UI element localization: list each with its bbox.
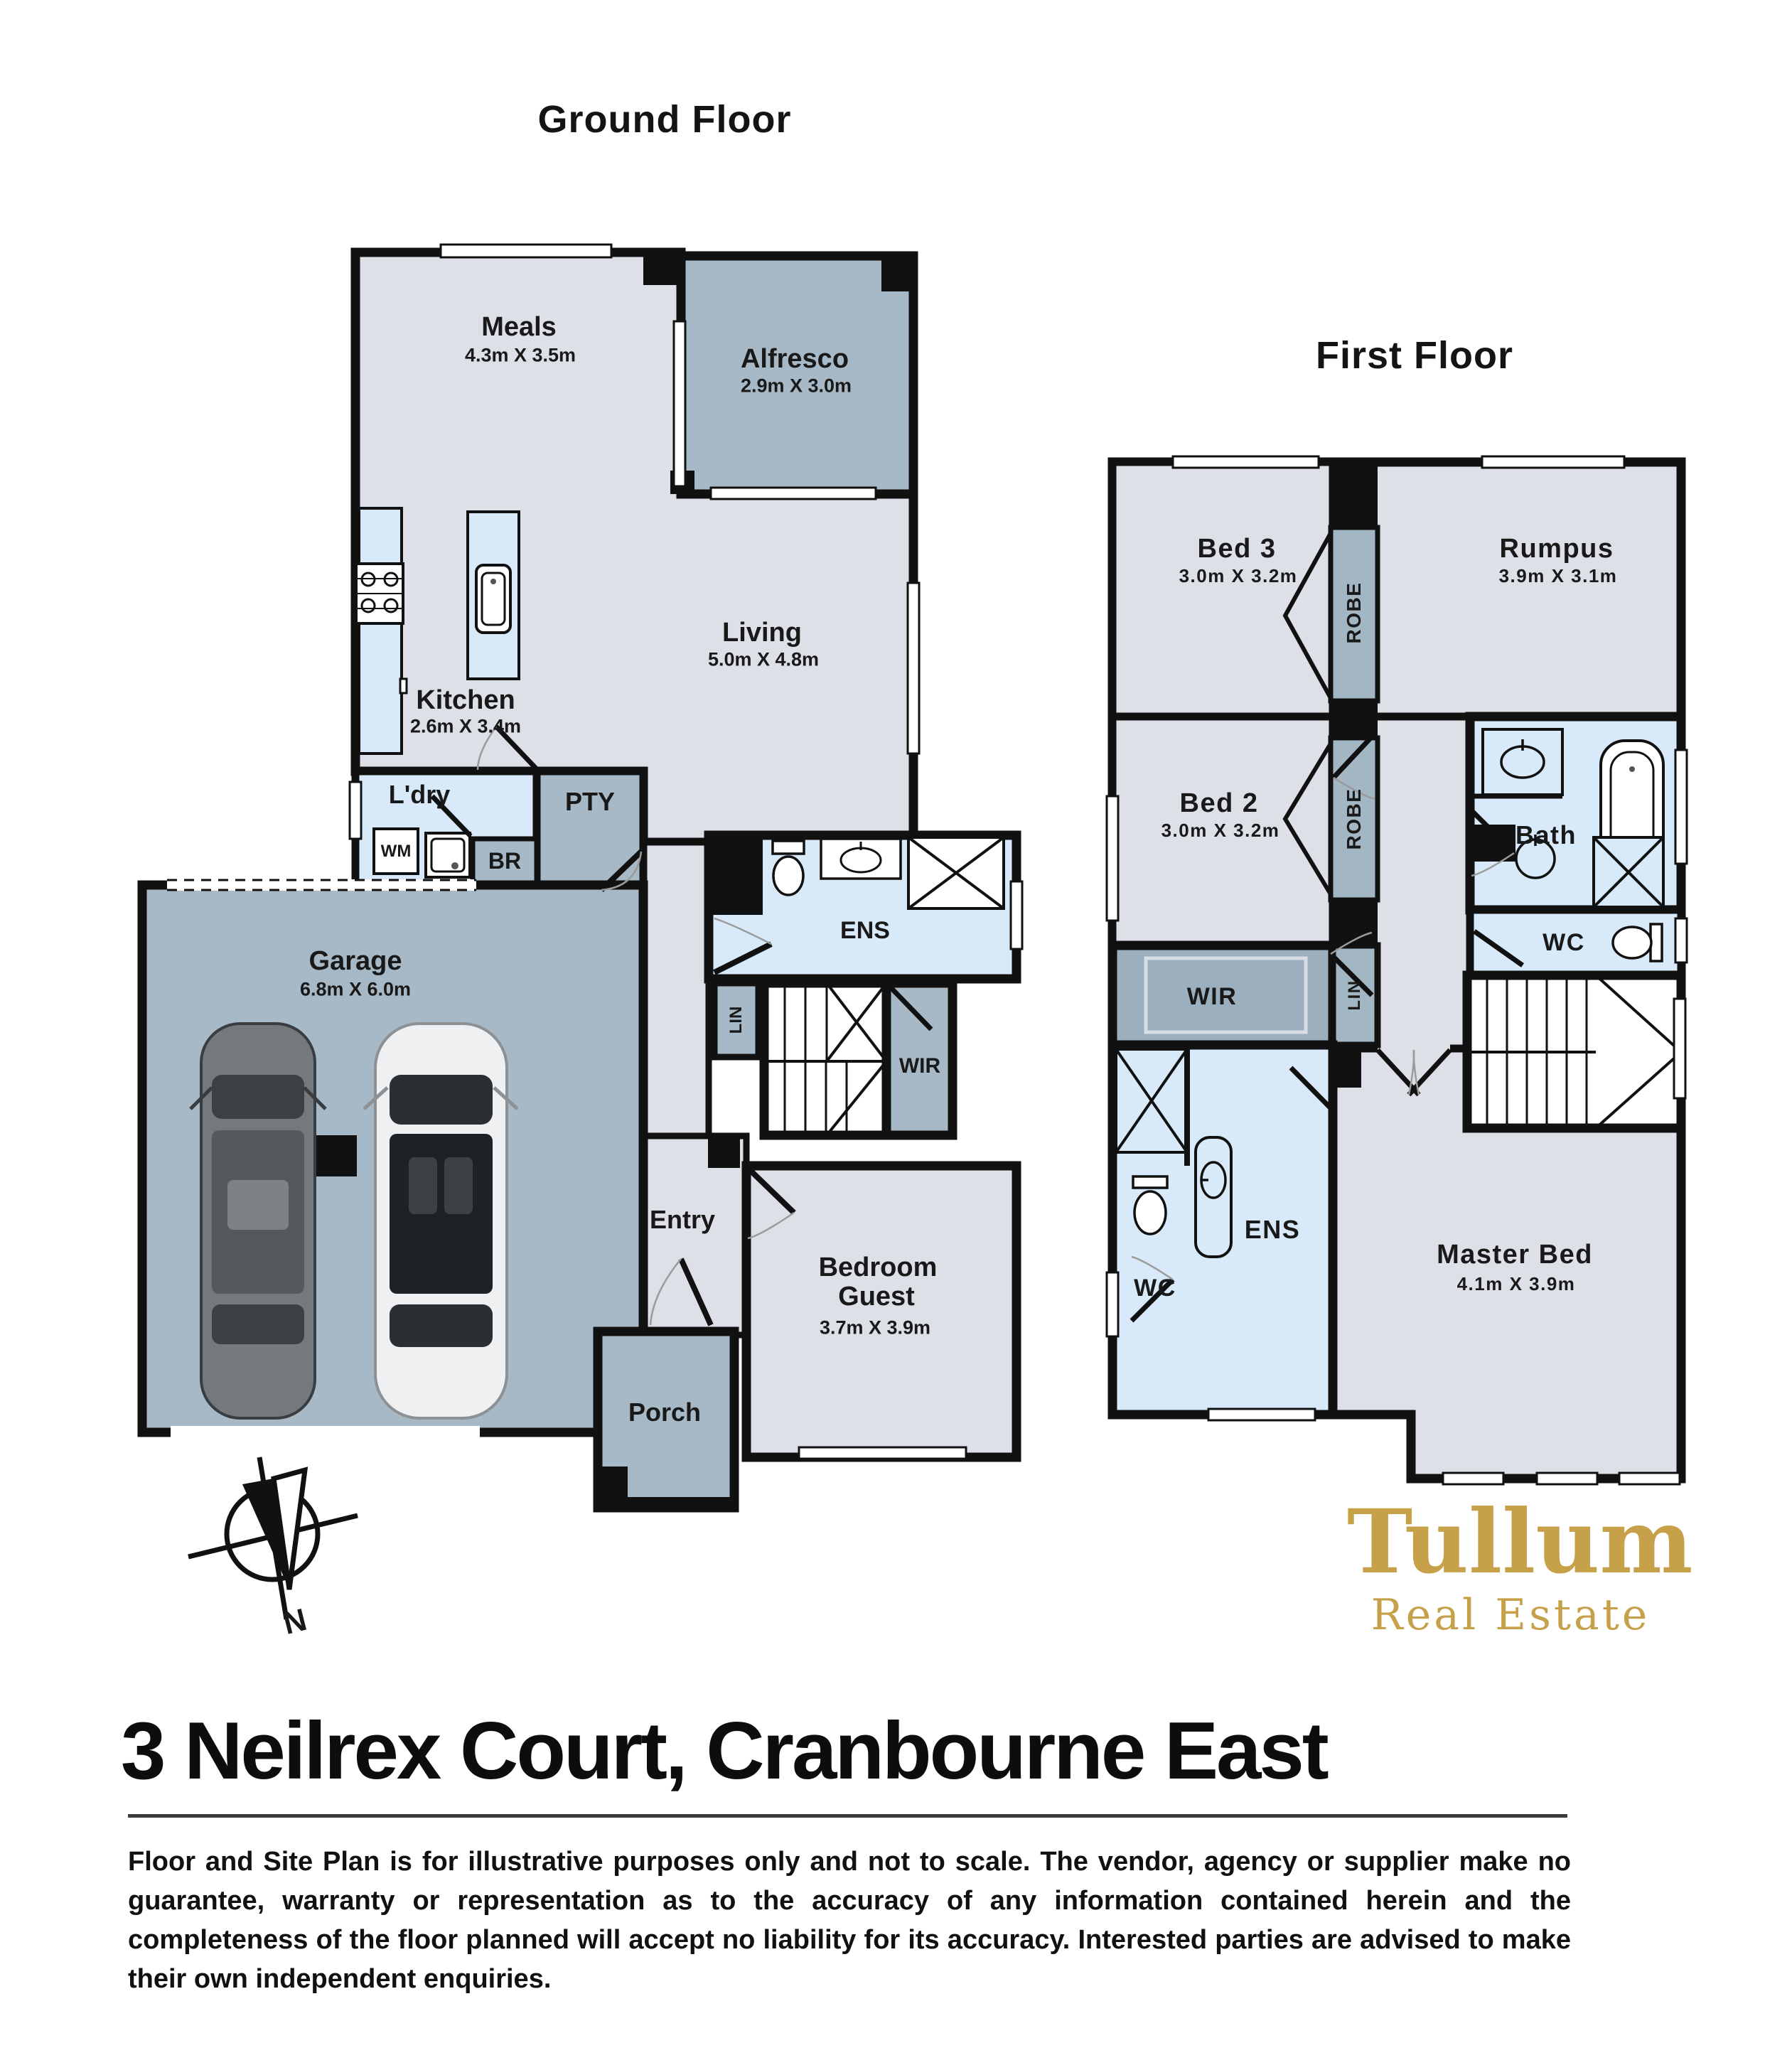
wall-stub bbox=[628, 1497, 734, 1510]
wc-ensuite-label: WC bbox=[1134, 1276, 1176, 1300]
alfresco-dims: 2.9m X 3.0m bbox=[741, 377, 852, 396]
oven-handle bbox=[400, 679, 407, 693]
wall-stub bbox=[708, 1137, 740, 1168]
linen-first-label: LIN bbox=[1346, 980, 1363, 1010]
window bbox=[1674, 999, 1685, 1098]
kitchen-label: Kitchen bbox=[416, 687, 515, 714]
window bbox=[1173, 456, 1319, 468]
window bbox=[1537, 1473, 1597, 1484]
linen-label: LIN bbox=[728, 1007, 745, 1034]
hallway bbox=[643, 842, 709, 1169]
window bbox=[1443, 1473, 1503, 1484]
window bbox=[674, 321, 685, 486]
window bbox=[441, 245, 611, 257]
ensuite-first-label: ENS bbox=[1245, 1217, 1301, 1243]
porch-label: Porch bbox=[628, 1400, 701, 1425]
ground-floor-plan bbox=[100, 235, 1052, 1543]
broom-label: BR bbox=[488, 849, 521, 872]
wall-stub bbox=[709, 835, 763, 915]
window bbox=[799, 1447, 966, 1459]
ensuite-label: ENS bbox=[840, 918, 890, 943]
meals-label: Meals bbox=[481, 313, 557, 340]
garage-dims: 6.8m X 6.0m bbox=[300, 980, 411, 999]
window bbox=[1208, 1409, 1315, 1420]
kitchen-bench bbox=[359, 508, 402, 754]
master-dims: 4.1m X 3.9m bbox=[1457, 1275, 1576, 1293]
property-address: 3 Neilrex Court, Cranbourne East bbox=[121, 1705, 1327, 1798]
window bbox=[1107, 1272, 1118, 1336]
garage-label: Garage bbox=[309, 948, 402, 975]
toilet-icon bbox=[1133, 1176, 1167, 1234]
bed3-label: Bed 3 bbox=[1198, 535, 1277, 562]
wc-bath-label: WC bbox=[1542, 931, 1585, 955]
car-icon bbox=[364, 1024, 517, 1418]
rumpus-label: Rumpus bbox=[1500, 535, 1614, 562]
shower-icon bbox=[1116, 1049, 1187, 1152]
garage-door-bottom bbox=[171, 1426, 480, 1437]
disclaimer-text: Floor and Site Plan is for illustrative … bbox=[128, 1843, 1571, 1999]
meals-dims: 4.3m X 3.5m bbox=[465, 346, 576, 365]
first-floor-title: First Floor bbox=[1316, 333, 1513, 377]
living-dims: 5.0m X 4.8m bbox=[708, 650, 819, 670]
entry-label: Entry bbox=[650, 1207, 715, 1233]
window bbox=[1011, 881, 1022, 949]
shower-icon bbox=[908, 837, 1004, 908]
window bbox=[1107, 796, 1118, 921]
toilet-icon bbox=[773, 841, 804, 895]
window bbox=[1675, 750, 1687, 864]
pantry-label: PTY bbox=[565, 789, 615, 815]
car-icon bbox=[191, 1024, 326, 1418]
wall-stub bbox=[643, 252, 681, 285]
first-floor-plan bbox=[1095, 441, 1706, 1521]
washing-machine-label: WM bbox=[381, 843, 412, 860]
bed3-dims: 3.0m X 3.2m bbox=[1179, 567, 1298, 585]
wir-first-label: WIR bbox=[1187, 985, 1238, 1009]
wall-stub bbox=[1331, 701, 1378, 717]
ground-floor-title: Ground Floor bbox=[538, 97, 792, 141]
compass-icon bbox=[181, 1450, 366, 1685]
wir-label: WIR bbox=[899, 1056, 940, 1077]
divider-rule bbox=[128, 1814, 1567, 1818]
window bbox=[1482, 456, 1624, 468]
guest-label-line2: Guest bbox=[838, 1283, 915, 1310]
garage-pillar bbox=[316, 1135, 357, 1176]
window bbox=[350, 782, 361, 839]
robe-bed3-label: ROBE bbox=[1344, 582, 1364, 644]
toilet-icon bbox=[1613, 924, 1662, 961]
guest-dims: 3.7m X 3.9m bbox=[820, 1319, 930, 1338]
wall-stub bbox=[1331, 900, 1378, 945]
rumpus-dims: 3.9m X 3.1m bbox=[1499, 567, 1618, 585]
window bbox=[1619, 1473, 1680, 1484]
master-label: Master Bed bbox=[1437, 1241, 1593, 1268]
robe-bed2-label: ROBE bbox=[1344, 788, 1364, 850]
agency-logo: Tullum Real Estate bbox=[1347, 1498, 1674, 1636]
guest-label-line1: Bedroom bbox=[819, 1254, 938, 1281]
bed2-dims: 3.0m X 3.2m bbox=[1161, 821, 1280, 840]
agency-tagline: Real Estate bbox=[1347, 1594, 1674, 1636]
bed2-label: Bed 2 bbox=[1180, 790, 1259, 817]
living-label: Living bbox=[722, 619, 802, 646]
window bbox=[908, 583, 919, 754]
wall-stub bbox=[881, 260, 914, 291]
basin-icon bbox=[1483, 729, 1562, 795]
basin-icon bbox=[821, 839, 901, 879]
basin-icon bbox=[1196, 1137, 1231, 1257]
wall-stub bbox=[598, 1466, 628, 1508]
agency-name: Tullum bbox=[1347, 1498, 1674, 1587]
wall-stub bbox=[1331, 462, 1378, 527]
floorplan-page: N Ground Floor First Floor Meals 4.3m X … bbox=[0, 0, 1792, 2070]
kitchen-dims: 2.6m X 3.4m bbox=[410, 717, 521, 736]
window bbox=[1675, 918, 1687, 962]
bath-label: Bath bbox=[1515, 822, 1577, 848]
window bbox=[711, 488, 876, 499]
shower-icon bbox=[1594, 837, 1663, 907]
laundry-label: L'dry bbox=[389, 782, 451, 808]
alfresco-label: Alfresco bbox=[741, 345, 849, 372]
